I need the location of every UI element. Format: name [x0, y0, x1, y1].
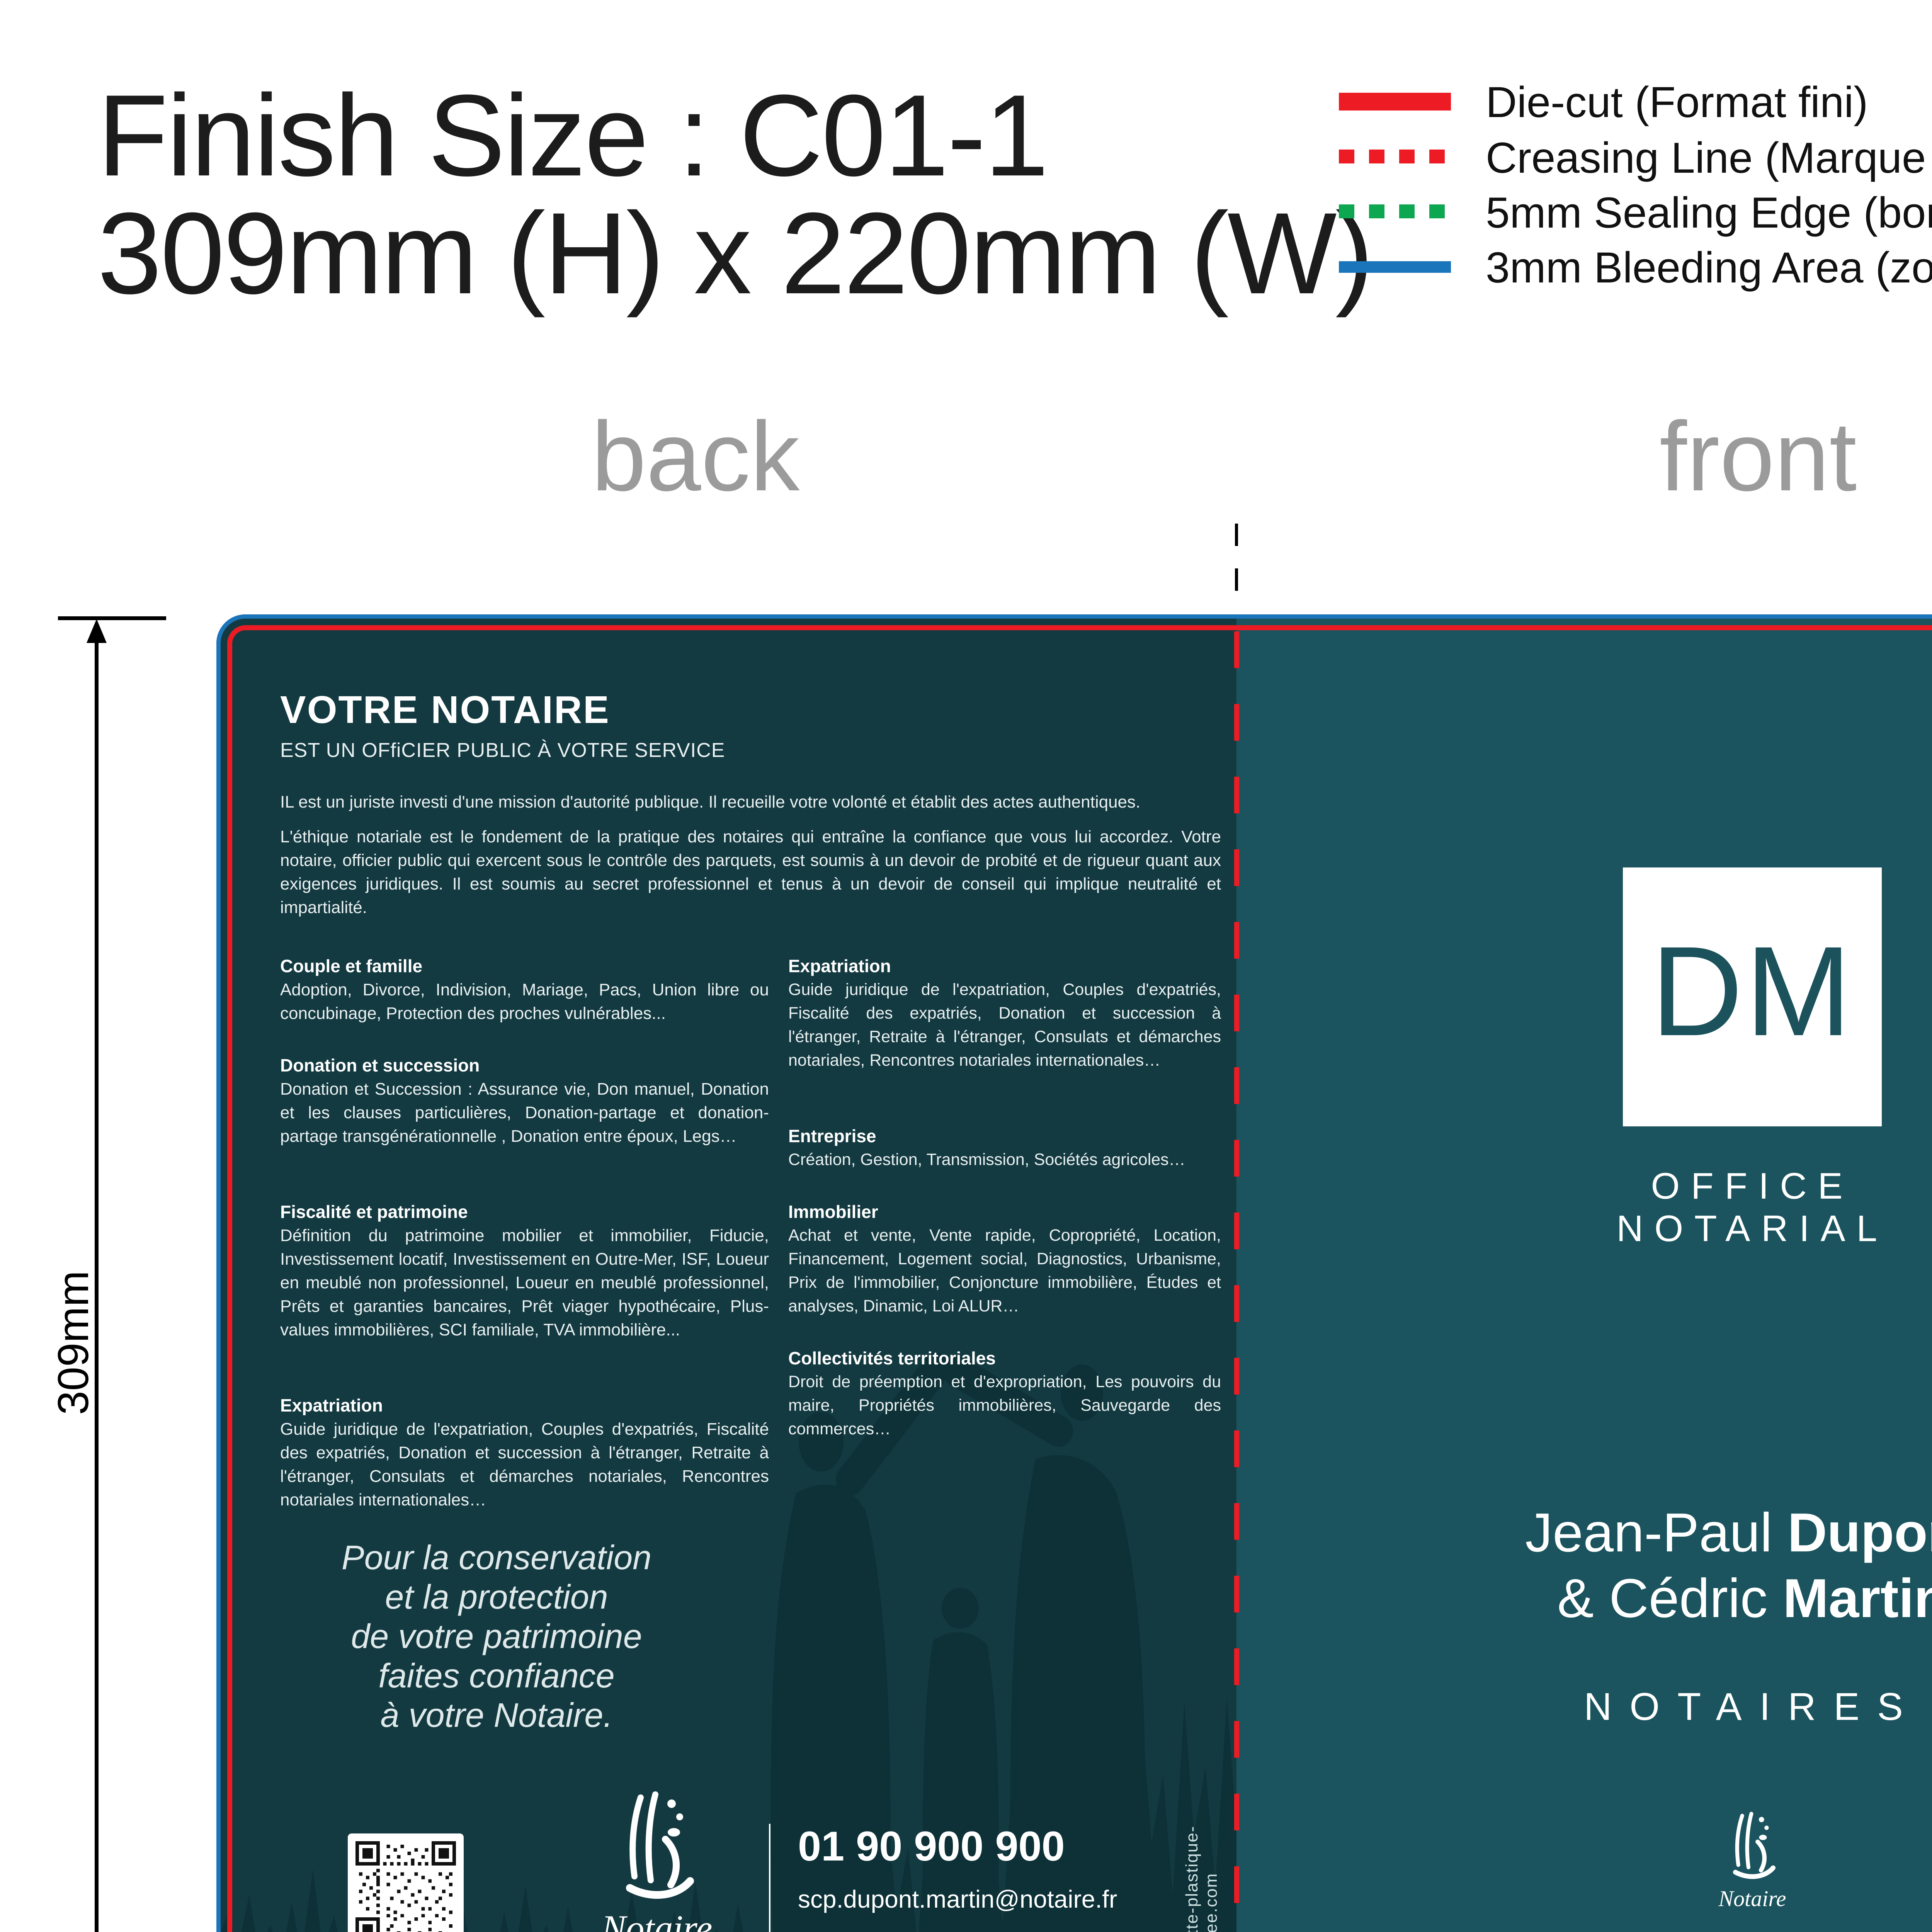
front-panel	[1236, 614, 1932, 1932]
legend-swatch-sealing	[1339, 204, 1451, 218]
legend-label-diecut: Die-cut (Format fini)	[1486, 77, 1868, 127]
legend-swatch-bleed	[1339, 261, 1451, 273]
category-text: Création, Gestion, Transmission, Société…	[788, 1148, 1221, 1172]
back-intro-2: L'éthique notariale est le fondement de …	[280, 825, 1221, 919]
legend-label-creasing: Creasing Line (Marque de pliage)	[1486, 133, 1932, 183]
back-category-couple-famille: Couple et famille Adoption, Divorce, Ind…	[280, 954, 769, 1025]
page-title-line2: 309mm (H) x 220mm (W)	[97, 195, 1372, 311]
fold-extension-top	[1235, 524, 1238, 612]
back-heading: VOTRE NOTAIRE	[280, 688, 610, 732]
fold-url: www.pochette-plastique-personnalisee.com	[1182, 1727, 1221, 1932]
category-title: Collectivités territoriales	[788, 1347, 1221, 1370]
category-title: Expatriation	[280, 1394, 769, 1417]
category-text: Définition du patrimoine mobilier et imm…	[280, 1224, 769, 1342]
legend-swatch-diecut	[1339, 93, 1451, 111]
back-category-expatriation-right: Expatriation Guide juridique de l'expatr…	[788, 954, 1221, 1072]
notaire-wordmark-front: Notaire	[1681, 1886, 1824, 1912]
name2-first: & Cédric	[1557, 1568, 1783, 1629]
contact-phone: 01 90 900 900	[798, 1822, 1065, 1870]
back-category-collectivites: Collectivités territoriales Droit de pré…	[788, 1347, 1221, 1441]
quote-line: Pour la conservation	[284, 1538, 709, 1577]
back-quote: Pour la conservation et la protection de…	[284, 1538, 709, 1735]
category-text: Donation et Succession : Assurance vie, …	[280, 1077, 769, 1148]
notaire-logo	[611, 1789, 703, 1905]
arrowhead	[87, 619, 107, 643]
name1-last: Dupont	[1787, 1502, 1932, 1563]
name-line-1: Jean-Paul Dupont	[1480, 1501, 1932, 1565]
dim-tick	[58, 616, 166, 620]
quote-line: et la protection	[284, 1577, 709, 1617]
notaire-logo-front	[1723, 1810, 1781, 1883]
name1-first: Jean-Paul	[1525, 1502, 1787, 1563]
dim-label-309: 309mm	[50, 1223, 97, 1463]
back-intro-1: IL est un juriste investi d'une mission …	[280, 790, 1221, 814]
print-proof-canvas: Finish Size : C01-1 309mm (H) x 220mm (W…	[0, 0, 1932, 1932]
quote-line: de votre patrimoine	[284, 1617, 709, 1656]
category-title: Expatriation	[788, 954, 1221, 978]
legend-label-sealing: 5mm Sealing Edge (bord de fermeture herm…	[1486, 188, 1932, 238]
category-text: Achat et vente, Vente rapide, Copropriét…	[788, 1224, 1221, 1318]
notaire-wordmark: Notaire	[580, 1907, 734, 1932]
back-category-donation: Donation et succession Donation et Succe…	[280, 1054, 769, 1148]
contact-email: scp.dupont.martin@notaire.fr	[798, 1885, 1117, 1913]
category-title: Entreprise	[788, 1124, 1221, 1148]
folder-design: VOTRE NOTAIRE EST UN OFfiCIER PUBLIC À V…	[216, 614, 1932, 1932]
dm-monogram: DM	[1623, 867, 1882, 1126]
contact-divider	[769, 1824, 770, 1932]
front-side-label: front	[1565, 400, 1932, 513]
creasing-line	[1234, 631, 1239, 1932]
back-category-entreprise: Entreprise Création, Gestion, Transmissi…	[788, 1124, 1221, 1172]
quote-line: à votre Notaire.	[284, 1696, 709, 1735]
name2-last: Martin	[1783, 1568, 1932, 1629]
back-category-immobilier: Immobilier Achat et vente, Vente rapide,…	[788, 1200, 1221, 1318]
back-subheading: EST UN OFfiCIER PUBLIC À VOTRE SERVICE	[280, 739, 725, 762]
category-text: Guide juridique de l'expatriation, Coupl…	[280, 1417, 769, 1512]
office-notarial-label: OFFICE NOTARIAL	[1507, 1165, 1932, 1250]
legend-swatch-creasing	[1339, 150, 1451, 163]
category-title: Donation et succession	[280, 1054, 769, 1077]
back-category-expatriation-left: Expatriation Guide juridique de l'expatr…	[280, 1394, 769, 1512]
category-text: Adoption, Divorce, Indivision, Mariage, …	[280, 978, 769, 1025]
notaires-label: NOTAIRES	[1480, 1685, 1932, 1729]
back-side-label: back	[502, 400, 889, 513]
category-title: Couple et famille	[280, 954, 769, 978]
name-line-2: & Cédric Martin	[1480, 1567, 1932, 1630]
legend-label-bleed: 3mm Bleeding Area (zone de fond perdu)	[1486, 243, 1932, 293]
category-text: Guide juridique de l'expatriation, Coupl…	[788, 978, 1221, 1072]
page-title-line1: Finish Size : C01-1	[97, 77, 1047, 193]
category-title: Immobilier	[788, 1200, 1221, 1224]
quote-line: faites confiance	[284, 1656, 709, 1696]
back-category-fiscalite: Fiscalité et patrimoine Définition du pa…	[280, 1200, 769, 1342]
category-title: Fiscalité et patrimoine	[280, 1200, 769, 1224]
category-text: Droit de préemption et d'expropriation, …	[788, 1370, 1221, 1441]
qr-code	[348, 1833, 464, 1932]
dm-monogram-card: DM	[1623, 867, 1882, 1126]
